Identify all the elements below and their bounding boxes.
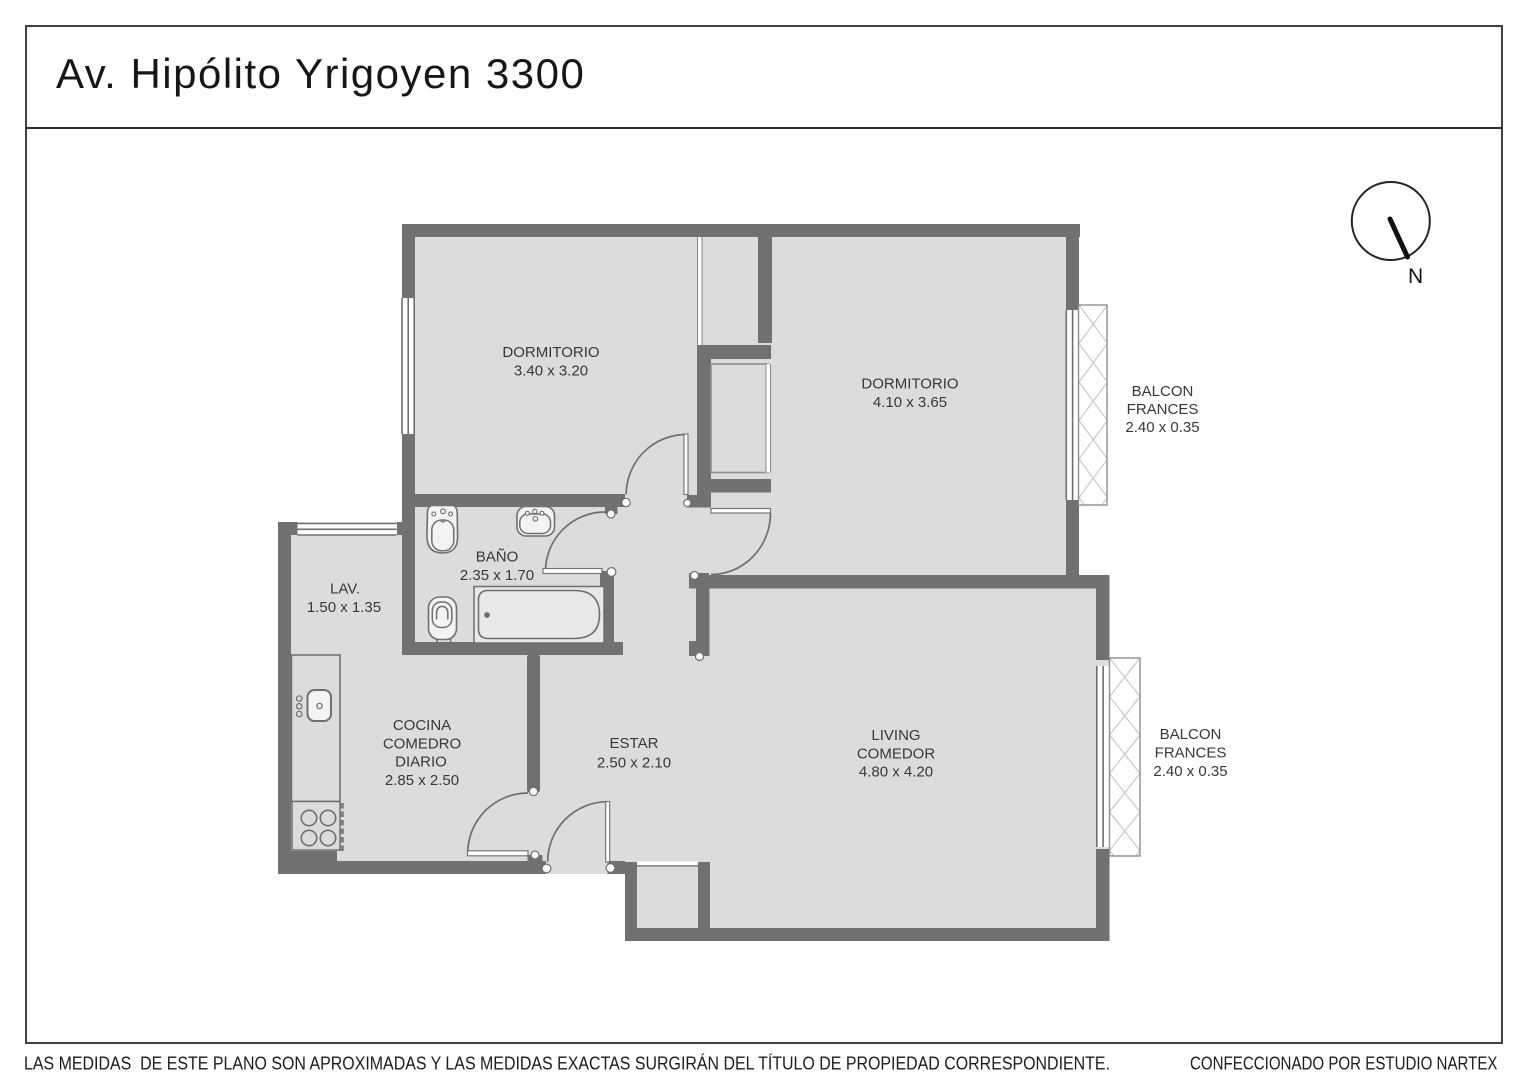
svg-text:CONFECCIONADO POR ESTUDIO NART: CONFECCIONADO POR ESTUDIO NARTEX [1190, 1054, 1498, 1074]
svg-text:DIARIO: DIARIO [395, 754, 447, 771]
svg-text:FRANCES: FRANCES [1155, 745, 1227, 762]
svg-text:2.50 x 2.10: 2.50 x 2.10 [597, 754, 671, 771]
svg-text:LAS MEDIDAS DE ESTE PLANO SON: LAS MEDIDAS DE ESTE PLANO SON APROXIMADA… [24, 1054, 1110, 1074]
svg-text:ESTAR: ESTAR [610, 735, 659, 752]
svg-text:DORMITORIO: DORMITORIO [861, 376, 958, 393]
svg-text:N: N [1408, 265, 1423, 288]
svg-text:LIVING: LIVING [871, 727, 920, 744]
svg-text:2.40 x 0.35: 2.40 x 0.35 [1153, 763, 1227, 780]
svg-text:LAV.: LAV. [330, 580, 360, 597]
svg-text:3.40 x 3.20: 3.40 x 3.20 [514, 362, 588, 379]
svg-text:COMEDOR: COMEDOR [857, 745, 936, 762]
svg-text:BAÑO: BAÑO [476, 549, 519, 566]
svg-text:FRANCES: FRANCES [1127, 401, 1199, 418]
svg-text:COCINA: COCINA [393, 717, 451, 734]
svg-text:BALCON: BALCON [1160, 726, 1222, 743]
svg-text:COMEDRO: COMEDRO [383, 735, 461, 752]
svg-text:BALCON: BALCON [1132, 383, 1194, 400]
svg-text:4.10 x 3.65: 4.10 x 3.65 [873, 394, 947, 411]
svg-text:2.35 x 1.70: 2.35 x 1.70 [460, 567, 534, 584]
svg-text:DORMITORIO: DORMITORIO [502, 344, 599, 361]
svg-text:2.85 x 2.50: 2.85 x 2.50 [385, 772, 459, 789]
svg-text:4.80 x 4.20: 4.80 x 4.20 [859, 764, 933, 781]
svg-text:1.50 x 1.35: 1.50 x 1.35 [307, 599, 381, 616]
svg-text:2.40 x 0.35: 2.40 x 0.35 [1125, 419, 1199, 436]
svg-text:Av. Hipólito Yrigoyen 3300: Av. Hipólito Yrigoyen 3300 [56, 50, 585, 97]
